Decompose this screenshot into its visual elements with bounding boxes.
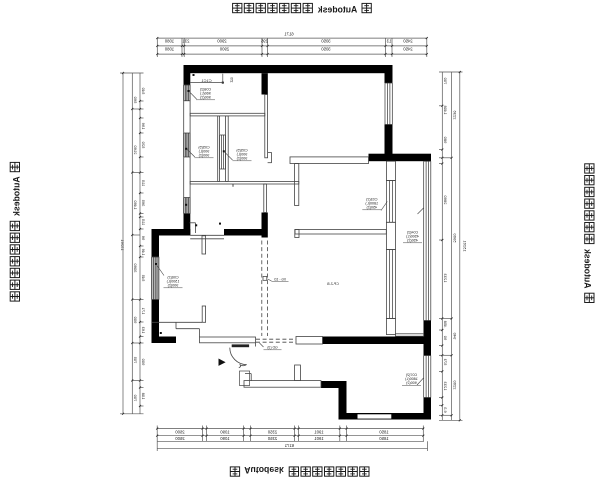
svg-text:900: 900 xyxy=(133,316,138,323)
svg-text:1850: 1850 xyxy=(379,430,389,435)
svg-text:171: 171 xyxy=(141,307,146,314)
svg-text:163: 163 xyxy=(141,326,146,333)
svg-text:545: 545 xyxy=(141,274,146,281)
svg-text:Autodesk: Autodesk xyxy=(12,176,22,216)
svg-text:450(2): 450(2) xyxy=(366,206,377,210)
svg-text:2350: 2350 xyxy=(267,436,277,441)
svg-text:13: 13 xyxy=(386,39,391,44)
svg-text:1460: 1460 xyxy=(133,200,138,210)
svg-text:900(2): 900(2) xyxy=(199,154,210,158)
svg-text:1850: 1850 xyxy=(379,436,389,441)
svg-text:2900: 2900 xyxy=(219,47,229,52)
svg-text:560: 560 xyxy=(133,96,138,103)
svg-text:980: 980 xyxy=(443,136,448,143)
svg-text:365: 365 xyxy=(141,199,146,206)
svg-text:2236: 2236 xyxy=(452,110,457,120)
svg-text:3050: 3050 xyxy=(321,47,331,52)
svg-text:Autodesk: Autodesk xyxy=(583,248,593,288)
svg-text:900: 900 xyxy=(141,358,146,365)
svg-text:1901: 1901 xyxy=(314,436,324,441)
svg-text:Autodesk: Autodesk xyxy=(317,5,357,15)
svg-text:520: 520 xyxy=(141,141,146,148)
svg-text:Autodesk: Autodesk xyxy=(244,465,284,475)
svg-text:90: 90 xyxy=(443,335,448,340)
svg-text:295: 295 xyxy=(260,39,268,44)
svg-text:6171: 6171 xyxy=(284,443,294,448)
svg-text:900(2): 900(2) xyxy=(168,284,179,288)
svg-text:540: 540 xyxy=(141,87,146,94)
svg-text:146: 146 xyxy=(141,248,146,255)
svg-text:2600: 2600 xyxy=(175,430,185,435)
svg-text:2350: 2350 xyxy=(267,430,277,435)
svg-text:6171: 6171 xyxy=(284,31,294,36)
svg-text:1080: 1080 xyxy=(164,47,174,52)
svg-text:2450: 2450 xyxy=(403,39,413,44)
svg-text:2860: 2860 xyxy=(443,195,448,205)
svg-text:1090: 1090 xyxy=(220,430,230,435)
svg-text:900(2): 900(2) xyxy=(237,157,248,161)
svg-text:1233: 1233 xyxy=(443,273,448,283)
svg-text:C1C1: C1C1 xyxy=(201,78,212,83)
svg-text:115: 115 xyxy=(141,218,146,225)
svg-text:1080: 1080 xyxy=(164,39,174,44)
svg-text:940: 940 xyxy=(452,332,457,339)
svg-text:573: 573 xyxy=(443,358,448,365)
svg-text:1901: 1901 xyxy=(314,430,324,435)
svg-text:CP-2-B: CP-2-B xyxy=(327,282,339,286)
svg-text:1233: 1233 xyxy=(443,381,448,391)
svg-text:6.3: 6.3 xyxy=(443,406,448,412)
svg-text:700: 700 xyxy=(443,77,448,84)
svg-text:2160: 2160 xyxy=(133,145,138,155)
svg-text:196: 196 xyxy=(141,122,146,129)
svg-text:5960: 5960 xyxy=(452,233,457,243)
svg-text:1090: 1090 xyxy=(220,436,230,441)
svg-text:2260: 2260 xyxy=(452,380,457,390)
svg-text:0G - 1D: 0G - 1D xyxy=(274,278,286,282)
svg-text:3060: 3060 xyxy=(133,263,138,273)
svg-text:15261: 15261 xyxy=(120,239,125,251)
svg-text:458: 458 xyxy=(443,320,448,327)
svg-text:GD (3): GD (3) xyxy=(267,346,277,350)
svg-text:2600: 2600 xyxy=(175,436,185,441)
svg-text:3050: 3050 xyxy=(321,39,331,44)
svg-text:2900: 2900 xyxy=(217,39,227,44)
svg-text:900(2): 900(2) xyxy=(406,381,417,385)
svg-text:108: 108 xyxy=(141,392,146,399)
svg-text:2450: 2450 xyxy=(403,47,413,52)
svg-text:150: 150 xyxy=(230,77,234,83)
svg-text:115: 115 xyxy=(141,179,146,186)
svg-text:705: 705 xyxy=(133,356,138,363)
svg-text:15261: 15261 xyxy=(463,240,468,252)
svg-text:900(2): 900(2) xyxy=(200,96,211,100)
svg-text:450(2): 450(2) xyxy=(407,239,418,243)
svg-text:1408: 1408 xyxy=(443,105,448,115)
svg-text:96: 96 xyxy=(141,235,146,240)
svg-text:700: 700 xyxy=(133,394,138,401)
svg-text:231: 231 xyxy=(182,39,190,44)
